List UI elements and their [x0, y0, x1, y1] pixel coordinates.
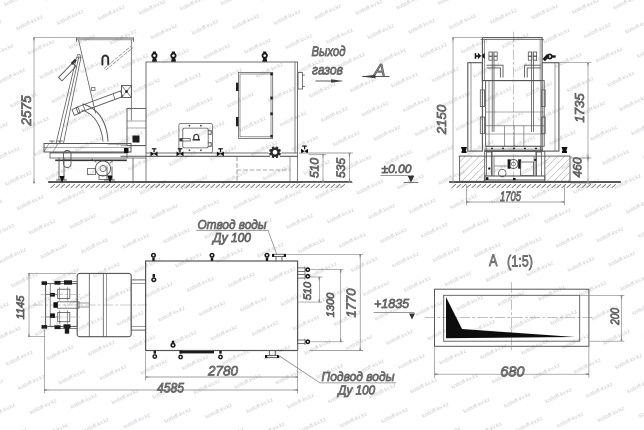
svg-text:Ду 100: Ду 100 — [211, 231, 251, 245]
svg-text:Отвод воды: Отвод воды — [198, 217, 267, 232]
svg-text:510: 510 — [308, 158, 322, 178]
svg-text:газов: газов — [312, 63, 343, 78]
svg-text:680: 680 — [500, 365, 524, 381]
svg-text:1300: 1300 — [325, 292, 337, 317]
svg-text:1705: 1705 — [500, 189, 521, 204]
svg-text:1770: 1770 — [344, 288, 359, 318]
svg-text:А: А — [489, 251, 498, 270]
svg-text:(1:5): (1:5) — [507, 254, 533, 271]
svg-text:510: 510 — [302, 281, 314, 300]
svg-text:535: 535 — [334, 158, 348, 178]
svg-text:Подвод воды: Подвод воды — [322, 369, 395, 384]
svg-text:Выход: Выход — [312, 44, 346, 59]
svg-text:Ду 100: Ду 100 — [336, 383, 375, 397]
svg-text:2150: 2150 — [434, 104, 449, 135]
svg-text:2575: 2575 — [19, 95, 34, 127]
svg-text:+1835: +1835 — [374, 297, 409, 311]
svg-text:4585: 4585 — [157, 381, 184, 396]
svg-text:±0.00: ±0.00 — [382, 162, 412, 176]
svg-text:2780: 2780 — [207, 364, 239, 379]
svg-text:460: 460 — [571, 157, 585, 177]
svg-text:1145: 1145 — [15, 295, 27, 320]
svg-text:1735: 1735 — [572, 93, 587, 123]
svg-text:200: 200 — [610, 307, 622, 325]
